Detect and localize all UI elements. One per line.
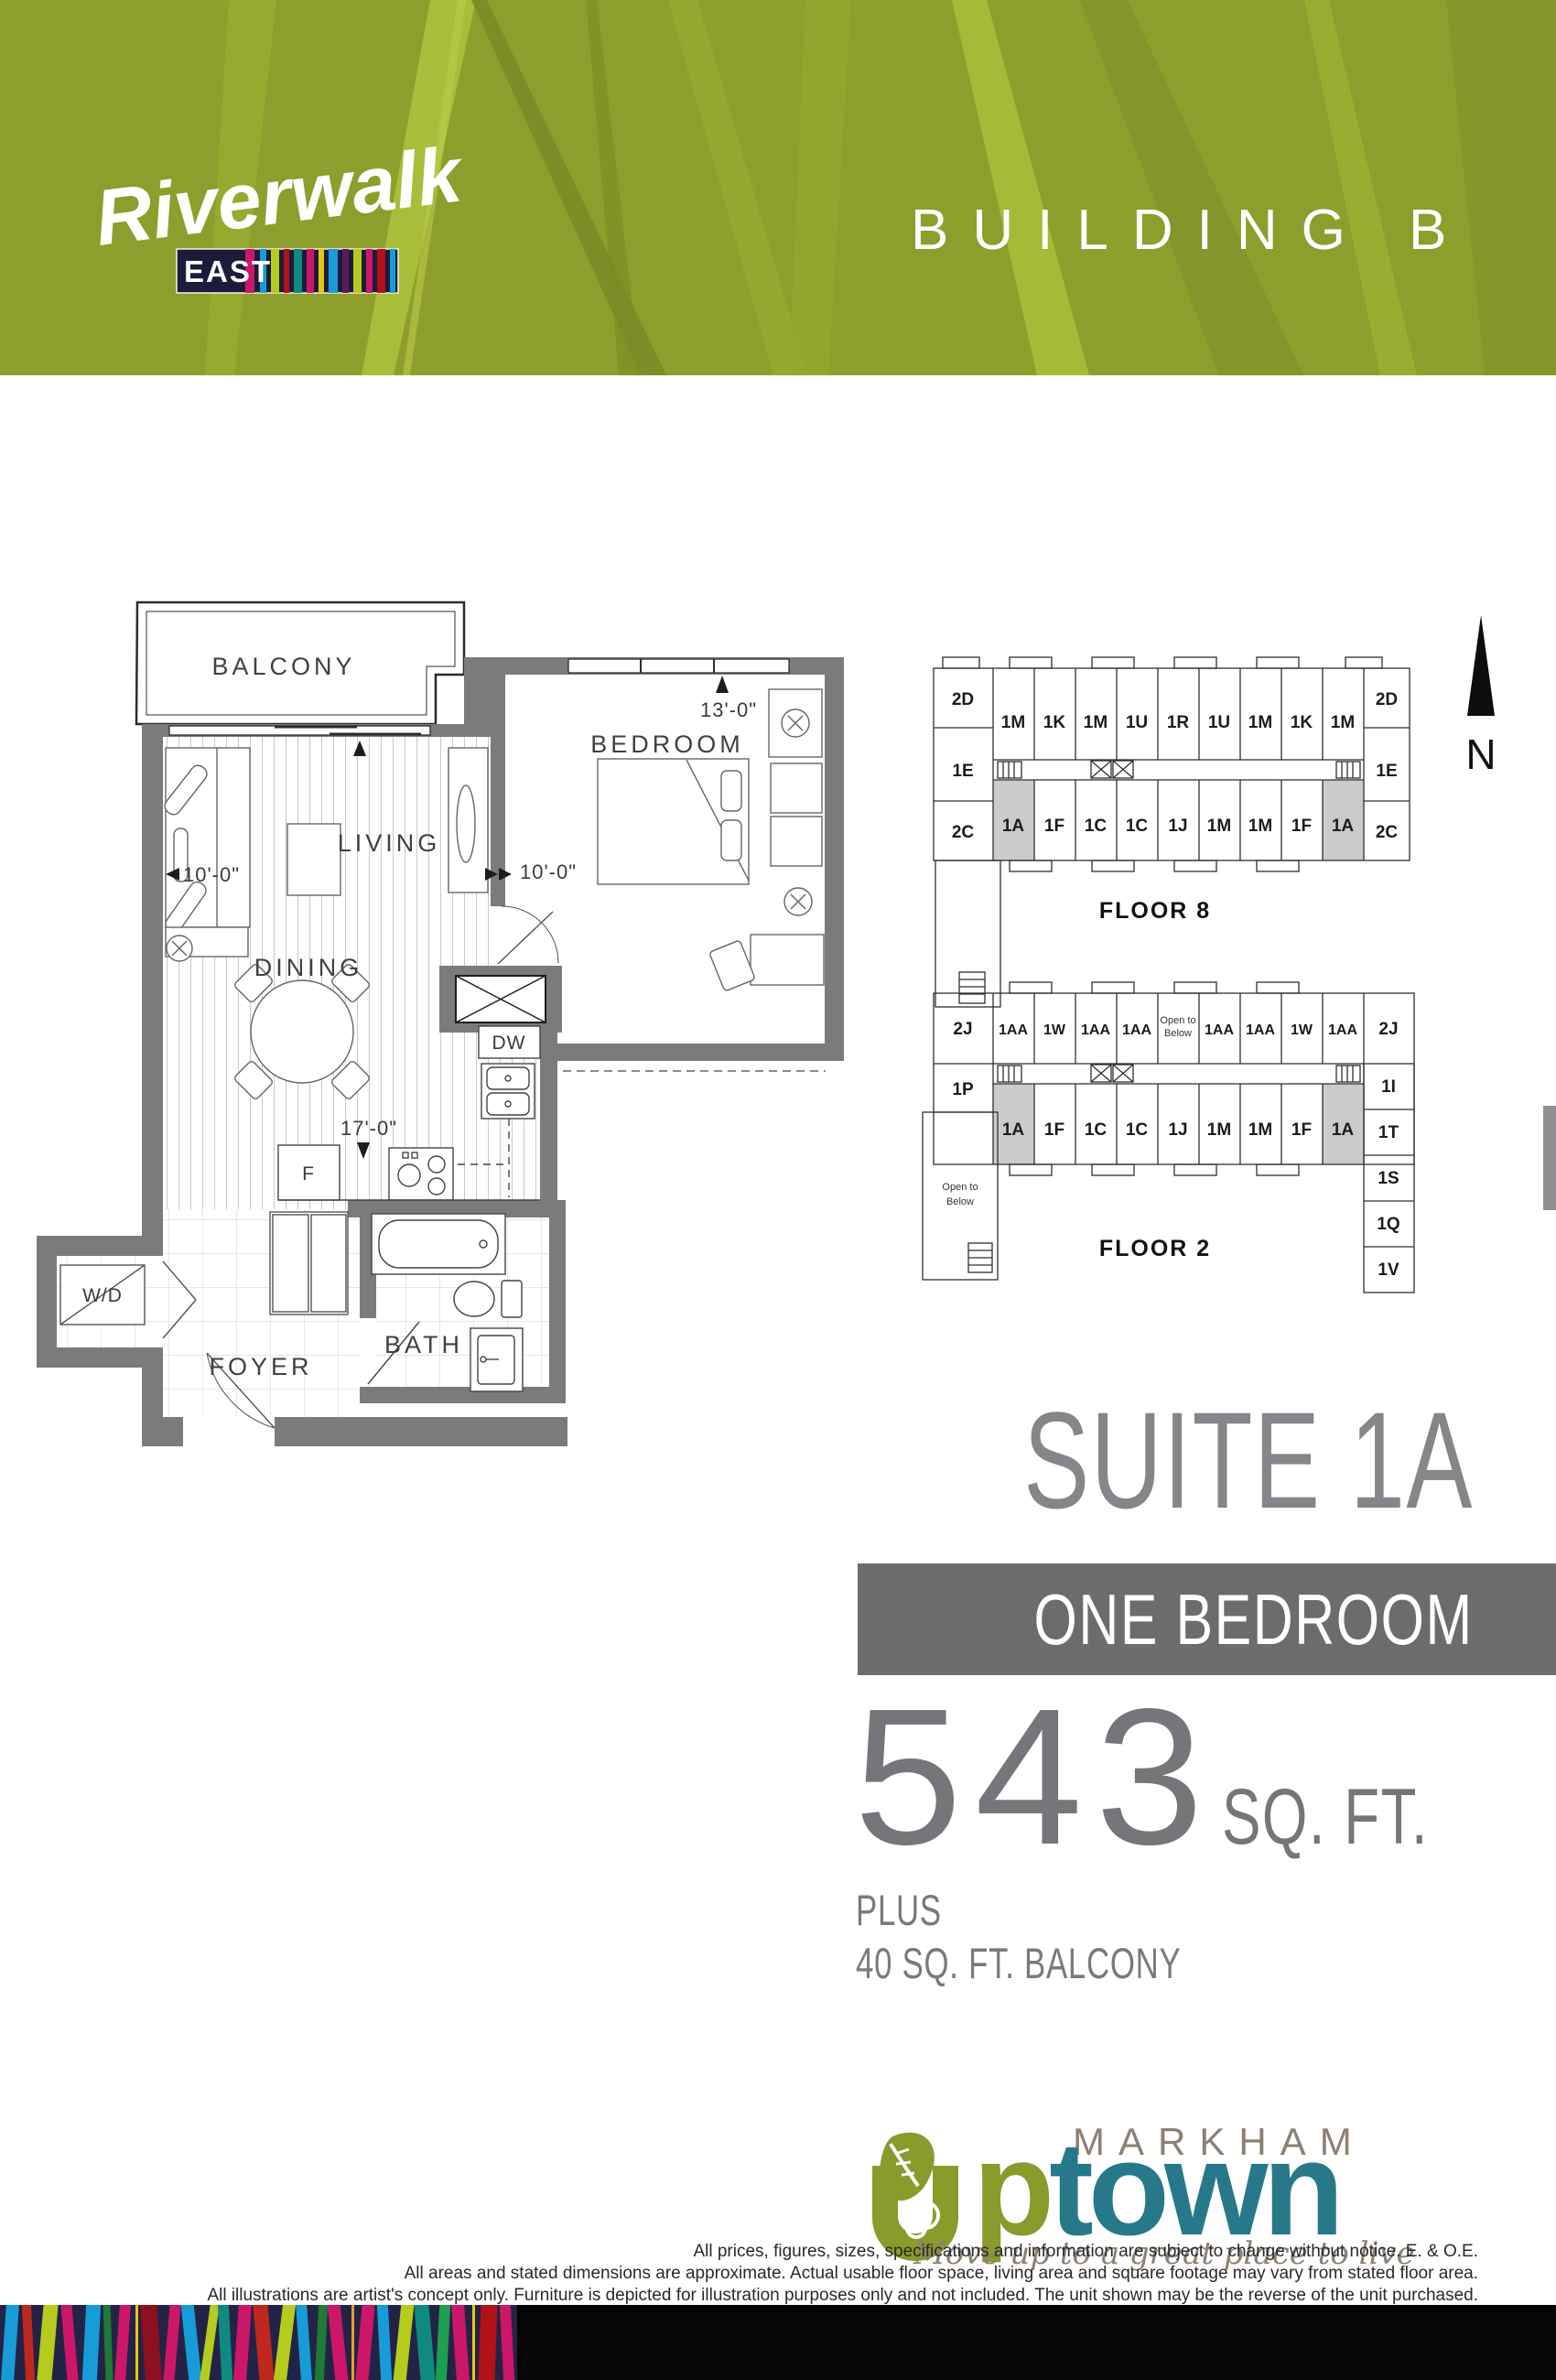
f8-left-2c: 2C: [952, 823, 975, 842]
f8-bot-8: 1A: [1332, 817, 1355, 836]
suite-type-label: ONE BEDROOM: [1034, 1563, 1474, 1675]
disclaimer: All prices, figures, sizes, specificatio…: [207, 2241, 1478, 2307]
f8-top-3: 1U: [1126, 713, 1148, 732]
f2-top-3: 1AA: [1122, 1022, 1151, 1038]
suite-area-value: 543: [854, 1680, 1216, 1874]
f8-bot-6: 1M: [1248, 817, 1272, 836]
f2-top-6: 1W: [1291, 1022, 1313, 1038]
f2-wing-0: 1I: [1381, 1077, 1396, 1097]
f2-top-7: 1AA: [1328, 1022, 1357, 1038]
f2-wing-3: 1Q: [1377, 1215, 1399, 1234]
disclaimer-line3: All illustrations are artist's concept o…: [207, 2285, 1478, 2307]
f8-bot-7: 1F: [1291, 817, 1312, 836]
balcony-area-label: 40 SQ. FT. BALCONY: [856, 1937, 1181, 1990]
north-label: N: [1465, 730, 1496, 778]
dim-living-width: 10'-0": [183, 863, 240, 886]
f8-right-2c: 2C: [1376, 823, 1399, 842]
floor8-stairs-elevators: [998, 761, 1360, 778]
f2-bot-2: 1C: [1085, 1120, 1108, 1140]
floor2-stairs-elevators: [998, 1065, 1360, 1082]
fridge-label: F: [302, 1163, 315, 1185]
keyplan-labels: 2D 1E 2C 2D 1E 2C 1M 1K 1M 1U 1R 1U 1M 1…: [942, 690, 1496, 1280]
banner: Riverwalk EAST: [0, 0, 1556, 375]
suite-balcony-note: PLUS 40 SQ. FT. BALCONY: [856, 1884, 1181, 1990]
east-badge-label: EAST: [184, 254, 272, 288]
floorplan: BALCONY: [0, 586, 906, 1474]
f2-left-2j: 2J: [953, 1020, 972, 1039]
f2-bot-7: 1F: [1291, 1120, 1312, 1140]
foyer-label: FOYER: [209, 1353, 312, 1380]
f2-bot-6: 1M: [1248, 1120, 1272, 1140]
floor8-title: FLOOR 8: [1099, 898, 1211, 924]
f2-wing-2: 1S: [1378, 1169, 1399, 1188]
bottom-bar: [0, 2305, 1556, 2380]
f2-wing-1: 1T: [1378, 1123, 1399, 1142]
bottom-stripes: [0, 2305, 517, 2380]
bath-label: BATH: [384, 1331, 463, 1358]
f8-top-5: 1U: [1208, 713, 1230, 732]
f2-bot-8: 1A: [1332, 1120, 1355, 1140]
page-edge-tab: [1543, 1106, 1556, 1210]
f2-otb-left-2: Below: [946, 1196, 974, 1207]
brochure-page: Riverwalk EAST: [0, 0, 1556, 2380]
f8-bot-3: 1C: [1126, 817, 1149, 836]
wd-label: W/D: [82, 1285, 123, 1306]
keyplans: 2D 1E 2C 2D 1E 2C 1M 1K 1M 1U 1R 1U 1M 1…: [906, 595, 1529, 1336]
suite-title: SUITE 1A: [1023, 1391, 1474, 1529]
f8-top-1: 1K: [1043, 713, 1066, 732]
living-label: LIVING: [338, 829, 441, 857]
plus-label: PLUS: [856, 1884, 1181, 1937]
east-badge: EAST: [177, 249, 398, 293]
balcony-label: BALCONY: [211, 653, 355, 680]
f8-right-2d: 2D: [1376, 690, 1398, 709]
f8-top-6: 1M: [1248, 713, 1272, 732]
building-title: BUILDING B: [911, 198, 1470, 263]
f8-bot-1: 1F: [1044, 817, 1064, 836]
f2-bot-0: 1A: [1002, 1120, 1025, 1140]
f8-top-8: 1M: [1331, 713, 1355, 732]
f2-wing-4: 1V: [1378, 1260, 1399, 1280]
f2-top-5: 1AA: [1246, 1022, 1275, 1038]
f8-bot-0: 1A: [1002, 817, 1025, 836]
dim-bedroom-width: 13'-0": [700, 698, 757, 721]
f8-left-1e: 1E: [952, 762, 973, 781]
f8-top-7: 1K: [1291, 713, 1313, 732]
floor2-title: FLOOR 2: [1099, 1236, 1211, 1261]
f8-bot-4: 1J: [1168, 817, 1187, 836]
bedroom-label: BEDROOM: [590, 730, 744, 758]
f8-right-1e: 1E: [1376, 762, 1397, 781]
f2-top-2: 1AA: [1081, 1022, 1110, 1038]
suite-area-unit: SQ. FT.: [1222, 1772, 1429, 1863]
f8-top-2: 1M: [1084, 713, 1108, 732]
disclaimer-line1: All prices, figures, sizes, specificatio…: [207, 2241, 1478, 2263]
suite-area: 543 SQ. FT.: [854, 1680, 1501, 1874]
floor2-balconies: [1010, 982, 1299, 1175]
f2-top-0: 1AA: [999, 1022, 1028, 1038]
dining-label: DINING: [254, 954, 363, 981]
dim-bedroom-depth: 10'-0": [520, 860, 577, 883]
dw-label: DW: [492, 1033, 526, 1054]
elevator-shaft: [456, 976, 546, 1022]
f2-bot-5: 1M: [1207, 1120, 1231, 1140]
f2-otb-mid-2: Below: [1164, 1028, 1192, 1039]
f2-bot-4: 1J: [1168, 1120, 1187, 1140]
disclaimer-line2: All areas and stated dimensions are appr…: [207, 2263, 1478, 2285]
f8-bot-5: 1M: [1207, 817, 1231, 836]
f2-right-2j: 2J: [1378, 1020, 1398, 1039]
floor8-wing: [935, 860, 1000, 1007]
f2-left-1p: 1P: [952, 1080, 974, 1099]
f2-otb-mid-1: Open to: [1160, 1015, 1195, 1026]
f2-top-4: 1AA: [1205, 1022, 1234, 1038]
f8-left-2d: 2D: [952, 690, 974, 709]
f2-otb-left-1: Open to: [942, 1182, 978, 1193]
f8-top-4: 1R: [1167, 713, 1190, 732]
f2-bot-3: 1C: [1126, 1120, 1149, 1140]
f8-bot-2: 1C: [1085, 817, 1108, 836]
f8-top-0: 1M: [1001, 713, 1025, 732]
suite-type-band: ONE BEDROOM: [858, 1563, 1556, 1675]
f2-top-1: 1W: [1043, 1022, 1066, 1038]
north-arrow-icon: [1467, 615, 1495, 716]
dim-suite-length: 17'-0": [340, 1117, 397, 1140]
f2-bot-1: 1F: [1044, 1120, 1064, 1140]
